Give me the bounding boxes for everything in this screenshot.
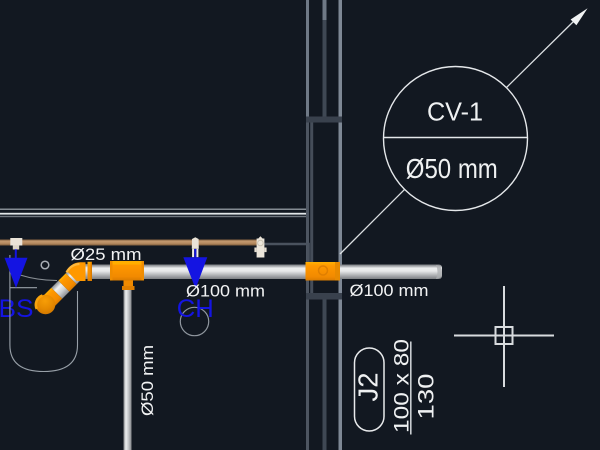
svg-text:130: 130 — [414, 374, 439, 420]
svg-text:CV-1: CV-1 — [427, 99, 483, 127]
svg-text:Ø100 mm: Ø100 mm — [350, 281, 429, 300]
svg-text:Ø50 mm: Ø50 mm — [139, 345, 157, 416]
svg-text:BS: BS — [0, 295, 33, 323]
svg-text:Ø25 mm: Ø25 mm — [71, 246, 142, 264]
svg-text:Ø50 mm: Ø50 mm — [406, 153, 498, 184]
svg-text:Ø100 mm: Ø100 mm — [186, 282, 265, 301]
svg-text:J2: J2 — [353, 372, 384, 401]
